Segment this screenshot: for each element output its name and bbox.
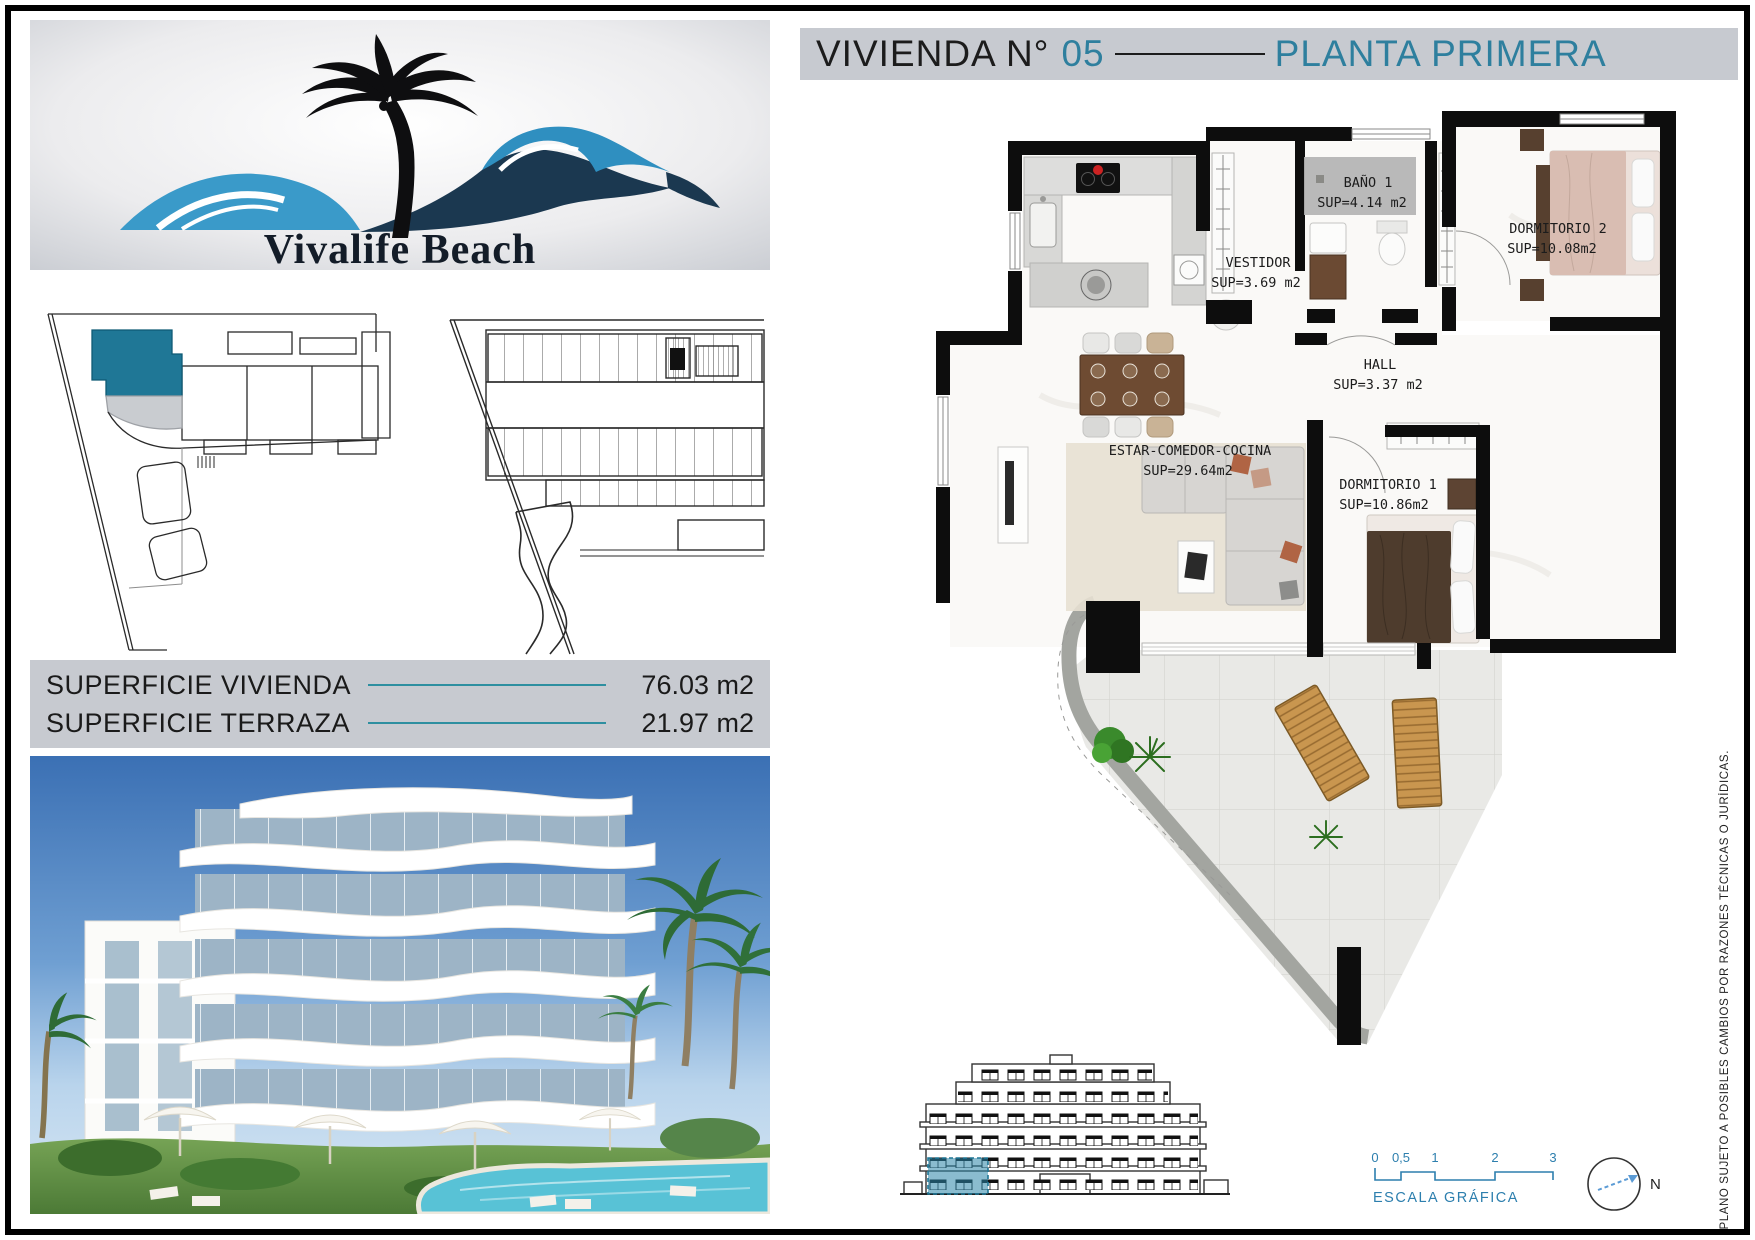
room-sup: SUP=3.69 m2	[1211, 275, 1300, 291]
dwelling-number: 05	[1061, 33, 1104, 75]
room-name: DORMITORIO 1	[1339, 477, 1437, 493]
washer-icon	[1174, 255, 1204, 285]
room-name: VESTIDOR	[1225, 255, 1291, 271]
floor-title: PLANTA PRIMERA	[1275, 33, 1607, 75]
room-sup: SUP=4.14 m2	[1317, 195, 1406, 211]
surface-value: 76.03 m2	[626, 670, 754, 701]
room-sup: SUP=10.86m2	[1339, 497, 1428, 513]
sink-icon	[1030, 203, 1056, 247]
site-garage-plan-drawing	[428, 288, 772, 656]
terrace-lounger	[1392, 698, 1442, 808]
scale-tick: 3	[1549, 1150, 1556, 1165]
tv-icon	[1005, 461, 1014, 525]
room-sup: SUP=29.64m2	[1143, 463, 1232, 479]
laptop-icon	[1184, 552, 1207, 581]
brochure-page: VIVIENDA N° 05 PLANTA PRIMERA	[0, 0, 1755, 1240]
highlighted-unit-elevation	[928, 1158, 988, 1194]
scale-tick: 0,5	[1392, 1150, 1410, 1165]
scale-tick: 1	[1431, 1150, 1438, 1165]
dwelling-title: VIVIENDA N°	[816, 33, 1049, 75]
surface-label: SUPERFICIE TERRAZA	[46, 708, 348, 739]
scale-tick: 0	[1371, 1150, 1378, 1165]
highlighted-unit	[92, 330, 182, 396]
room-name: HALL	[1364, 357, 1397, 373]
terrace-glass-doors	[1142, 643, 1415, 655]
room-name: BAÑO 1	[1344, 174, 1393, 191]
scale-label: ESCALA GRÁFICA	[1373, 1189, 1519, 1206]
surface-row-vivienda: SUPERFICIE VIVIENDA 76.03 m2	[46, 670, 754, 701]
room-name: ESTAR-COMEDOR-COCINA	[1109, 443, 1272, 459]
toilet-icon	[1379, 233, 1405, 265]
graphic-scale: 0 0,5 1 2 3 ESCALA GRÁFICA	[1368, 1146, 1578, 1208]
floor-plan-drawing: BAÑO 1 SUP=4.14 m2 VESTIDOR SUP=3.69 m2 …	[890, 95, 1680, 1055]
cooktop-icon	[1076, 163, 1120, 193]
scale-bar-line	[1375, 1168, 1553, 1180]
room-sup: SUP=10.08m2	[1507, 241, 1596, 257]
brand-name: Vivalife Beach	[264, 227, 537, 270]
room-name: DORMITORIO 2	[1509, 221, 1607, 237]
surface-value: 21.97 m2	[626, 708, 754, 739]
room-sup: SUP=3.37 m2	[1333, 377, 1422, 393]
plan-header-bar: VIVIENDA N° 05 PLANTA PRIMERA	[800, 28, 1738, 80]
building-render-illustration	[30, 756, 770, 1214]
elevation-drawing	[900, 1042, 1230, 1210]
header-divider-line	[1115, 53, 1265, 55]
site-key-plan-drawing	[32, 288, 394, 656]
brand-logo: Vivalife Beach	[30, 20, 770, 270]
building-elevation	[900, 1042, 1230, 1210]
scale-bar-drawing: 0 0,5 1 2 3 ESCALA GRÁFICA	[1368, 1146, 1578, 1208]
leader-line	[368, 722, 606, 724]
scale-tick: 2	[1491, 1150, 1498, 1165]
surface-label: SUPERFICIE VIVIENDA	[46, 670, 348, 701]
site-garage-plan	[428, 288, 772, 656]
surface-row-terraza: SUPERFICIE TERRAZA 21.97 m2	[46, 708, 754, 739]
north-compass: N	[1578, 1146, 1698, 1226]
north-label: N	[1650, 1176, 1661, 1193]
leader-line	[368, 684, 606, 686]
legal-disclaimer: PLANO SUJETO A POSIBLES CAMBIOS POR RAZO…	[1719, 750, 1731, 1230]
surface-summary: SUPERFICIE VIVIENDA 76.03 m2 SUPERFICIE …	[30, 660, 770, 748]
palm-wave-logo-icon: Vivalife Beach	[30, 20, 770, 270]
compass-icon: N	[1578, 1146, 1698, 1226]
apartment-floor-plan: BAÑO 1 SUP=4.14 m2 VESTIDOR SUP=3.69 m2 …	[890, 95, 1680, 1055]
nightstand	[1448, 479, 1476, 509]
building-photo	[30, 756, 770, 1214]
vanity	[1310, 255, 1346, 299]
basin-icon	[1310, 223, 1346, 253]
site-key-plan	[32, 288, 394, 656]
